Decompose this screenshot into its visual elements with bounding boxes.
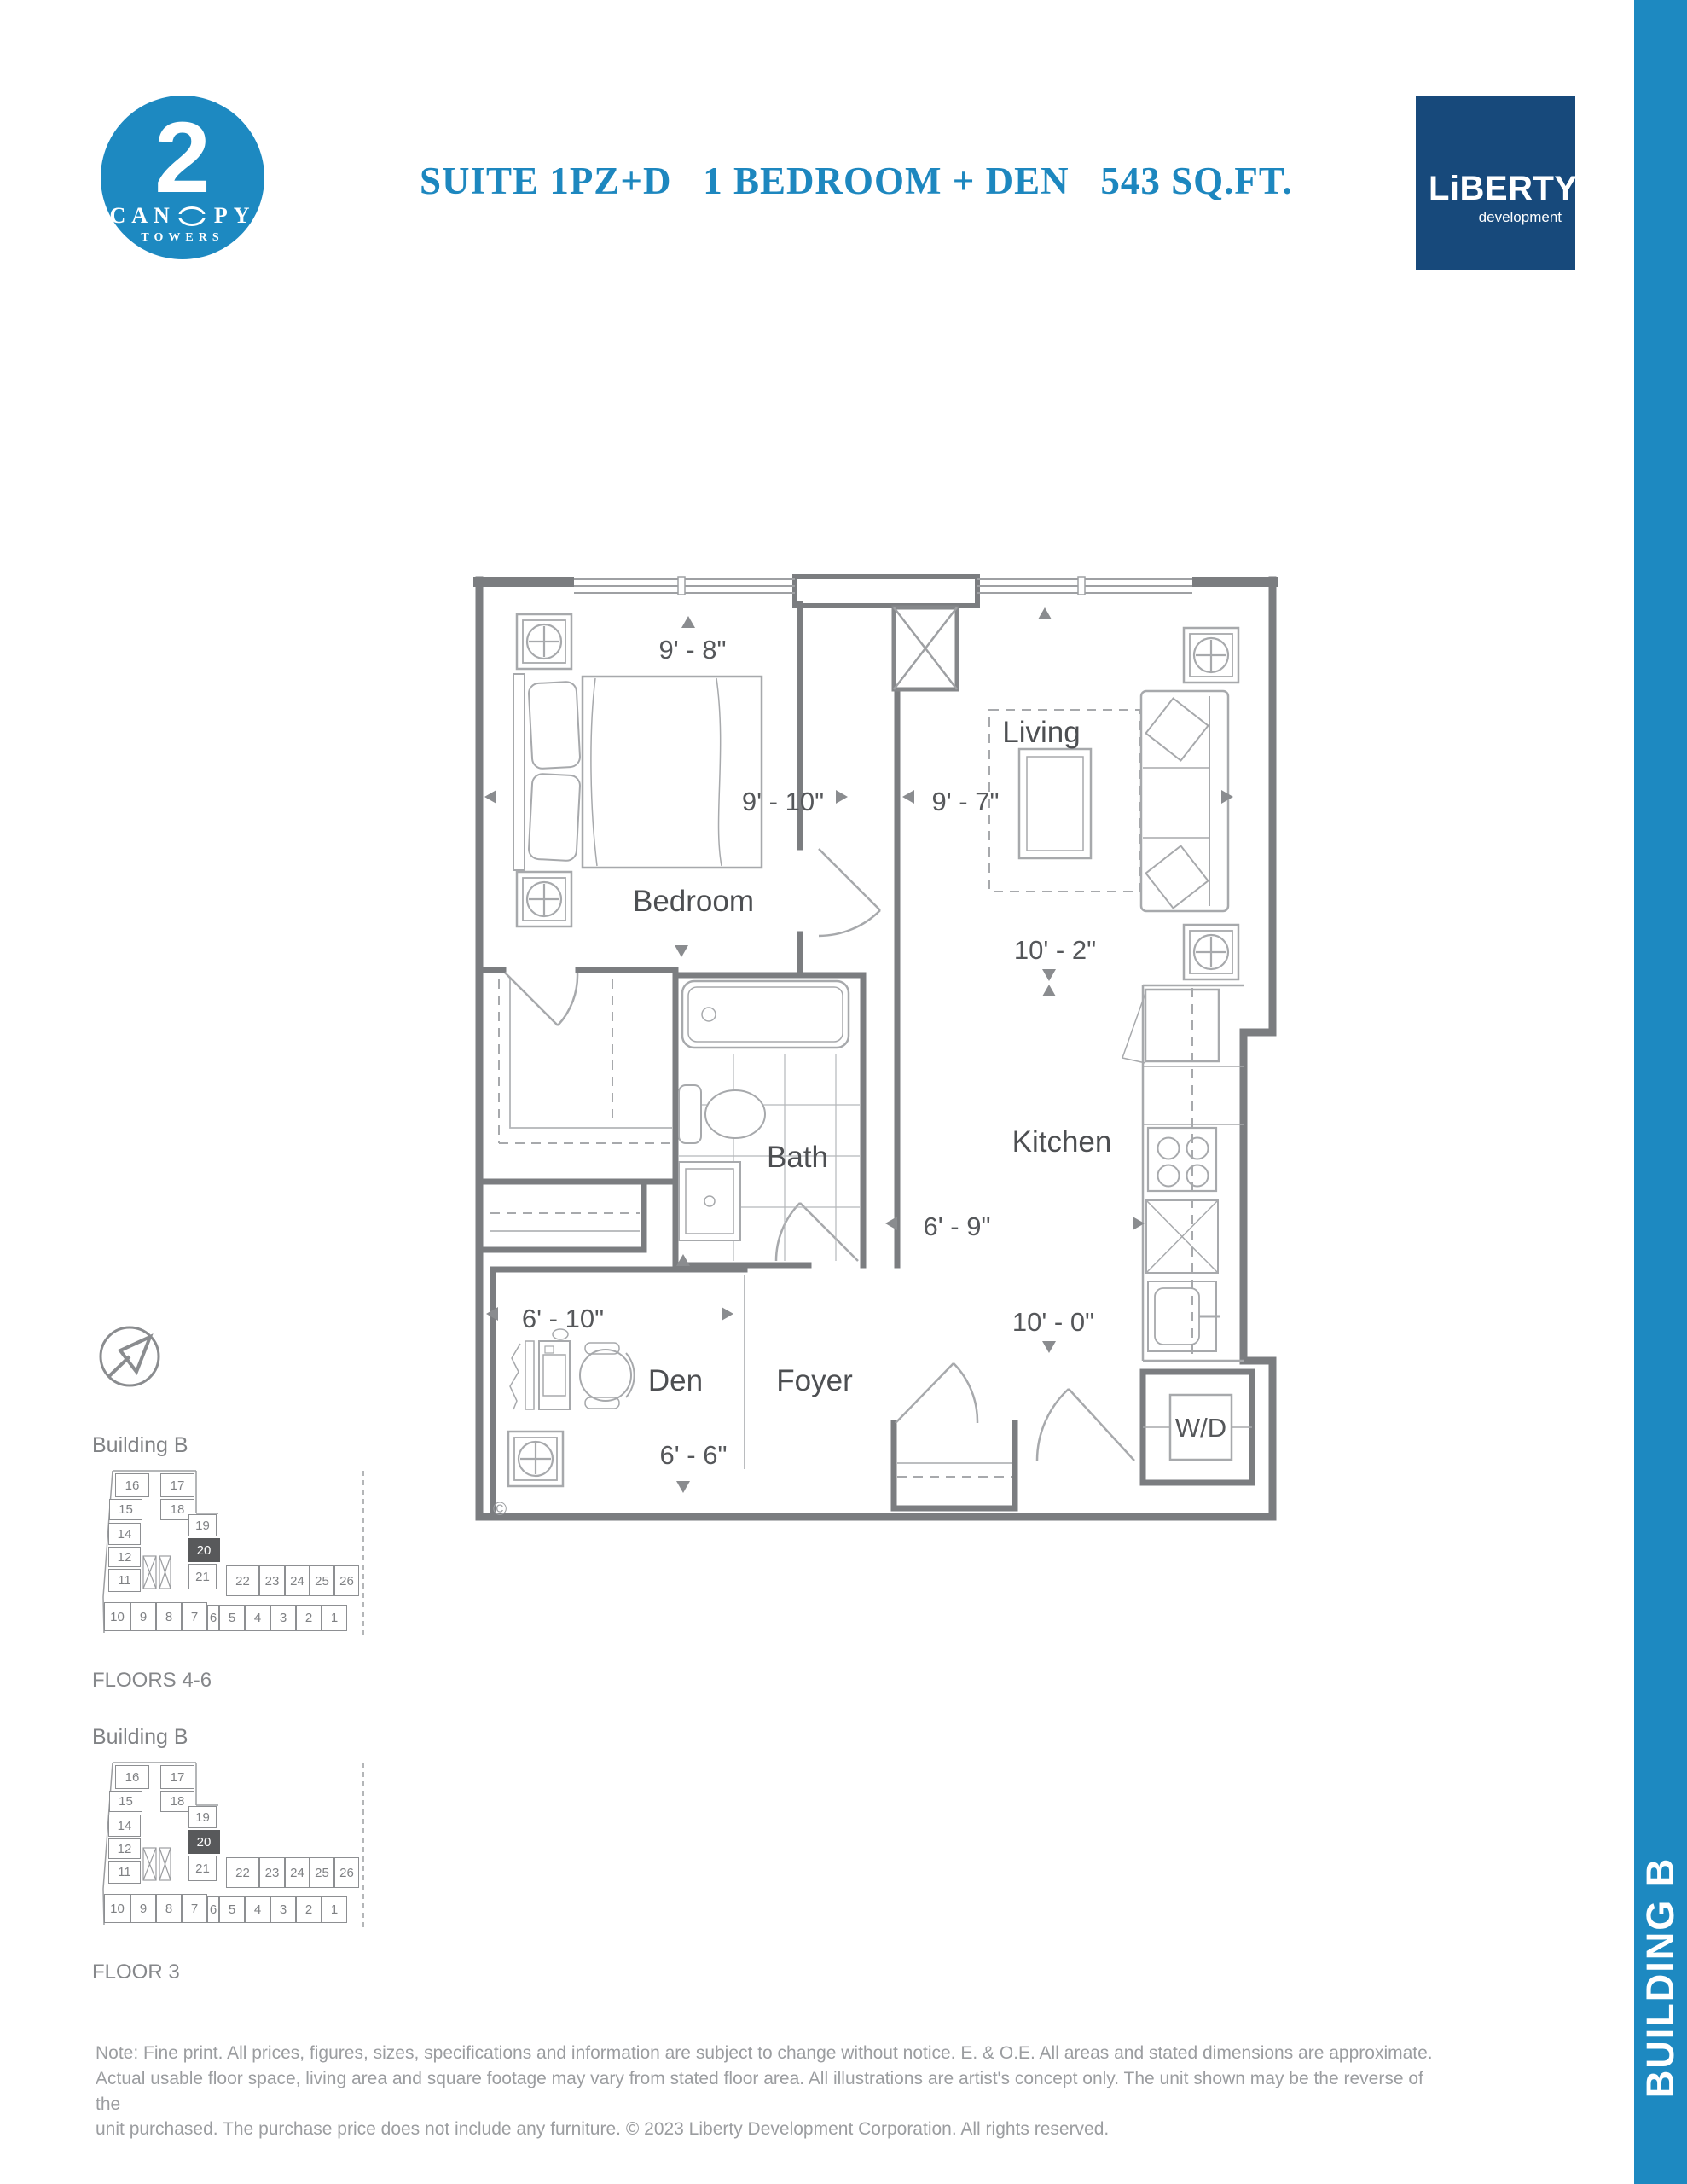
keyplan-unit-15: 15 — [109, 1791, 142, 1812]
keyplan-units: 1617151814191220112122232425261098765432… — [92, 1469, 374, 1640]
keyplan-unit-17: 17 — [160, 1473, 194, 1497]
keyplan-unit-26: 26 — [334, 1857, 359, 1888]
keyplan-unit-22: 22 — [226, 1857, 259, 1888]
liberty-logo-name: LiBERTY — [1429, 170, 1578, 208]
keyplan-unit-20: 20 — [188, 1538, 220, 1562]
room-label-bedroom: Bedroom — [633, 885, 754, 918]
keyplan-floors-4-6: Building B 16171518141912201121222324252… — [92, 1433, 382, 1458]
keyplan-unit-21: 21 — [188, 1856, 217, 1881]
room-label-living: Living — [1002, 716, 1080, 749]
canopy-logo-subtitle: TOWERS — [101, 231, 264, 245]
keyplan-unit-8: 8 — [156, 1894, 182, 1923]
brochure-page: 2 CAN PY TOWERS SUITE 1PZ+D 1 BEDROOM + … — [0, 0, 1687, 2184]
keyplan-unit-10: 10 — [104, 1894, 130, 1923]
keyplan-unit-8: 8 — [156, 1602, 182, 1631]
keyplan-unit-14: 14 — [108, 1523, 141, 1545]
dim-den-depth: 6' - 6" — [660, 1440, 728, 1470]
wall-top-left — [473, 577, 574, 587]
light-fixture-icon — [1184, 628, 1238, 682]
building-b-band: BUILDING B — [1634, 0, 1687, 2184]
inner-walls — [479, 604, 1252, 1514]
keyplan-unit-11: 11 — [108, 1569, 141, 1592]
keyplan-unit-3: 3 — [270, 1896, 296, 1923]
dim-living-length: 10' - 2" — [1014, 935, 1096, 965]
keyplan-unit-5: 5 — [219, 1605, 245, 1631]
keyplan-unit-4: 4 — [245, 1896, 270, 1923]
coffee-table — [1019, 749, 1091, 858]
keyplan-unit-26: 26 — [334, 1565, 359, 1596]
canopy-name-suffix: PY — [214, 203, 256, 229]
dim-den-width: 6' - 10" — [522, 1304, 604, 1333]
dim-kitchen-width: 6' - 9" — [924, 1211, 991, 1241]
keyplan-building-label: Building B — [92, 1725, 382, 1750]
shaft-x-box — [894, 607, 957, 689]
dim-living-width: 9' - 7" — [932, 787, 1000, 816]
sofa — [1141, 691, 1228, 911]
floor-plan: 9' - 8" 9' - 10" 9' - 7" 10' - 2" 6' - 9… — [461, 555, 1288, 1527]
wall-header — [795, 577, 977, 606]
keyplan-unit-6: 6 — [207, 1896, 219, 1923]
keyplan-unit-24: 24 — [285, 1857, 310, 1888]
bath-vanity — [679, 1162, 740, 1240]
keyplan-unit-2: 2 — [296, 1605, 322, 1631]
keyplan-units: 1617151814191220112122232425261098765432… — [92, 1761, 374, 1931]
keyplan-unit-12: 12 — [108, 1547, 141, 1567]
canopy-logo-number: 2 — [101, 107, 264, 208]
keyplan-unit-10: 10 — [104, 1602, 130, 1631]
dim-bedroom-width: 9' - 8" — [659, 635, 727, 665]
dashed-guides — [490, 710, 1192, 1477]
keyplan-caption: FLOORS 4-6 — [92, 1669, 212, 1693]
keyplan-unit-24: 24 — [285, 1565, 310, 1596]
keyplan-unit-1: 1 — [322, 1896, 347, 1923]
building-b-label: BUILDING B — [1638, 1857, 1683, 2099]
keyplan-unit-1: 1 — [322, 1605, 347, 1631]
toilet — [679, 1085, 765, 1143]
room-label-kitchen: Kitchen — [1012, 1125, 1112, 1159]
dim-bedroom-depth: 9' - 10" — [742, 787, 824, 816]
desk-chair — [580, 1350, 631, 1401]
keyplan-unit-19: 19 — [188, 1514, 217, 1536]
bed — [513, 674, 762, 870]
room-label-den: Den — [648, 1364, 703, 1397]
keyplan-unit-14: 14 — [108, 1815, 141, 1837]
light-fixture-icon — [508, 1432, 563, 1486]
keyplan-unit-22: 22 — [226, 1565, 259, 1596]
copyright-mark: © — [493, 1498, 507, 1519]
wall-top-right — [1192, 577, 1278, 587]
kitchen-counter — [1122, 985, 1244, 1361]
suite-title: SUITE 1PZ+D 1 BEDROOM + DEN 543 SQ.FT. — [420, 159, 1293, 203]
keyplan-unit-17: 17 — [160, 1765, 194, 1789]
liberty-logo-subtitle: development — [1479, 209, 1562, 226]
light-fixture-icon — [517, 872, 571, 926]
keyplan-unit-16: 16 — [115, 1473, 149, 1497]
fridge — [1145, 990, 1219, 1061]
fine-print: Note: Fine print. All prices, figures, s… — [96, 2041, 1443, 2142]
keyplan-unit-2: 2 — [296, 1896, 322, 1923]
room-label-bath: Bath — [767, 1141, 828, 1174]
keyplan-unit-21: 21 — [188, 1564, 217, 1589]
north-arrow-icon — [96, 1322, 164, 1391]
den-desk-set — [510, 1329, 635, 1409]
keyplan-unit-6: 6 — [207, 1605, 219, 1631]
dim-kitchen-length: 10' - 0" — [1012, 1307, 1094, 1337]
keyplan-unit-23: 23 — [259, 1565, 285, 1596]
light-fixture-icon — [517, 614, 571, 669]
keyplan-building-label: Building B — [92, 1433, 382, 1458]
keyplan-unit-16: 16 — [115, 1765, 149, 1789]
canopy-name-prefix: CAN — [109, 203, 175, 229]
keyplan-unit-25: 25 — [310, 1857, 334, 1888]
room-label-washer-dryer: W/D — [1175, 1413, 1226, 1443]
room-label-foyer: Foyer — [776, 1364, 853, 1397]
keyplan-unit-9: 9 — [130, 1602, 156, 1631]
bathtub — [682, 981, 849, 1048]
light-fixture-icon — [1184, 925, 1238, 979]
keyplan-unit-20: 20 — [188, 1830, 220, 1854]
keyplan-unit-7: 7 — [182, 1602, 207, 1631]
keyplan-elevators — [143, 1556, 171, 1589]
dimension-arrows — [484, 607, 1233, 1493]
keyplan-elevators — [143, 1848, 171, 1880]
keyplan-unit-25: 25 — [310, 1565, 334, 1596]
keyplan-unit-15: 15 — [109, 1499, 142, 1520]
canopy-towers-logo: 2 CAN PY TOWERS — [101, 96, 264, 259]
keyplan-unit-5: 5 — [219, 1896, 245, 1923]
keyplan-unit-3: 3 — [270, 1605, 296, 1631]
keyplan-unit-23: 23 — [259, 1857, 285, 1888]
keyplan-caption: FLOOR 3 — [92, 1960, 180, 1984]
liberty-development-logo: LiBERTY development — [1416, 96, 1575, 270]
keyplan-unit-4: 4 — [245, 1605, 270, 1631]
keyplan-unit-9: 9 — [130, 1894, 156, 1923]
keyplan-floor-3: Building B 16171518141912201121222324252… — [92, 1725, 382, 1750]
keyplan-unit-7: 7 — [182, 1894, 207, 1923]
keyplan-unit-12: 12 — [108, 1838, 141, 1859]
outer-walls — [479, 580, 1272, 1517]
keyplan-unit-19: 19 — [188, 1806, 217, 1828]
keyplan-unit-11: 11 — [108, 1861, 141, 1884]
canopy-o-icon — [178, 206, 206, 226]
